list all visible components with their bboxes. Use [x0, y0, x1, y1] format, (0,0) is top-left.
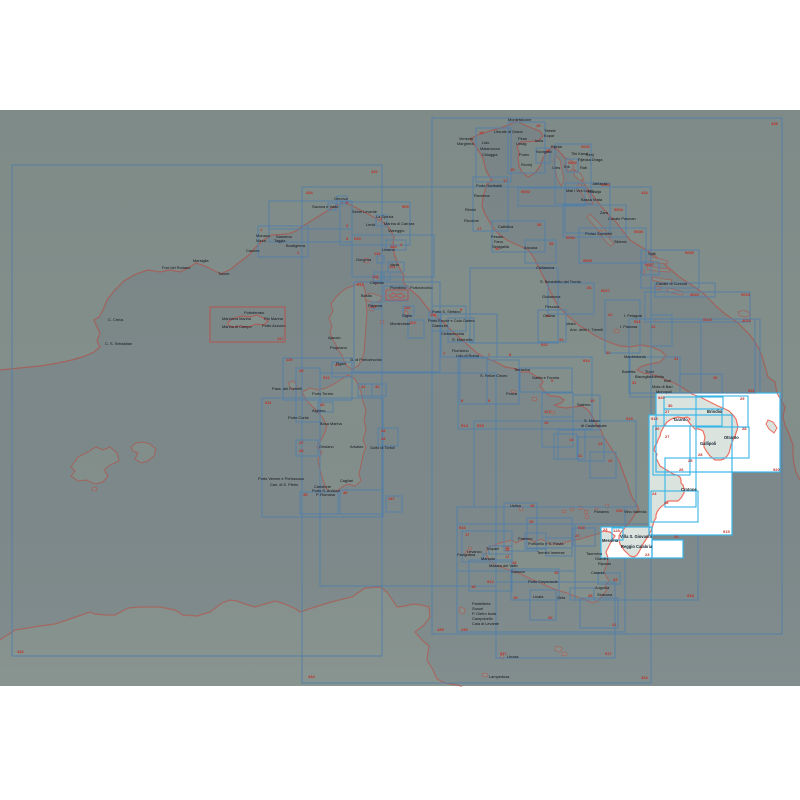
svg-text:S. Benedetto del Tronto: S. Benedetto del Tronto [540, 279, 581, 284]
svg-text:19: 19 [554, 570, 559, 575]
svg-text:Mazara del Vallo: Mazara del Vallo [489, 563, 518, 568]
svg-text:Augusta: Augusta [595, 585, 610, 590]
svg-text:34: 34 [587, 285, 592, 290]
svg-text:915: 915 [626, 416, 633, 421]
svg-text:Krk: Krk [564, 164, 570, 169]
svg-text:Brindisi: Brindisi [707, 409, 722, 414]
svg-text:Lido di Roma: Lido di Roma [456, 353, 480, 358]
svg-text:230: 230 [461, 627, 468, 632]
svg-text:22: 22 [575, 533, 580, 538]
svg-text:Porto Torres: Porto Torres [312, 391, 333, 396]
svg-text:Vibo Valentia: Vibo Valentia [624, 509, 647, 514]
svg-text:Marciana Marina: Marciana Marina [222, 316, 252, 321]
svg-text:33: 33 [613, 577, 618, 582]
svg-text:116: 116 [374, 251, 381, 256]
svg-text:Novigrad: Novigrad [536, 149, 552, 154]
svg-text:49: 49 [299, 368, 304, 373]
svg-text:Rio Marina: Rio Marina [264, 316, 284, 321]
svg-text:920: 920 [658, 395, 665, 400]
svg-text:13: 13 [598, 441, 603, 446]
svg-text:435: 435 [437, 627, 444, 632]
svg-text:Terracina: Terracina [514, 367, 531, 372]
svg-text:110: 110 [404, 305, 411, 310]
svg-text:Chioggia: Chioggia [482, 152, 498, 157]
svg-text:Marsiglia: Marsiglia [193, 258, 209, 263]
svg-text:31: 31 [674, 356, 679, 361]
svg-text:Catania: Catania [591, 570, 605, 575]
svg-text:26: 26 [655, 426, 660, 431]
svg-text:Savona e Vado: Savona e Vado [312, 204, 338, 209]
svg-text:Lampedusa: Lampedusa [489, 674, 510, 679]
svg-text:0004: 0004 [614, 207, 624, 212]
svg-text:Sibenic: Sibenic [614, 239, 627, 244]
svg-text:Genova: Genova [334, 196, 348, 201]
svg-text:913: 913 [357, 282, 364, 287]
svg-text:Tihi Kanal: Tihi Kanal [571, 151, 588, 156]
svg-text:0006: 0006 [685, 250, 695, 255]
svg-text:918: 918 [687, 593, 694, 598]
svg-text:919: 919 [651, 416, 658, 421]
svg-text:Gallipoli: Gallipoli [700, 441, 716, 446]
svg-text:Golfo di Tortoli: Golfo di Tortoli [370, 445, 395, 450]
svg-text:17: 17 [465, 532, 470, 537]
svg-text:28: 28 [742, 426, 747, 431]
svg-text:0002: 0002 [521, 189, 531, 194]
svg-text:Taranto: Taranto [673, 417, 688, 422]
svg-text:Zara: Zara [600, 210, 609, 215]
svg-text:16: 16 [530, 503, 535, 508]
svg-text:0010: 0010 [741, 292, 751, 297]
svg-text:Bastia: Bastia [361, 293, 373, 298]
svg-text:24: 24 [652, 491, 657, 496]
svg-text:Rimini: Rimini [465, 207, 476, 212]
svg-text:4022: 4022 [690, 292, 700, 297]
svg-text:17: 17 [505, 554, 510, 559]
svg-text:Vada: Vada [390, 262, 400, 267]
svg-text:15: 15 [529, 519, 534, 524]
svg-text:18: 18 [471, 584, 476, 589]
svg-text:Rab: Rab [580, 165, 587, 170]
svg-text:Riccione: Riccione [464, 218, 479, 223]
svg-text:25: 25 [664, 500, 669, 505]
svg-text:16: 16 [505, 547, 510, 552]
svg-text:Alghero: Alghero [312, 408, 325, 413]
svg-text:910: 910 [354, 236, 361, 241]
svg-text:28: 28 [698, 452, 703, 457]
svg-text:36: 36 [537, 222, 542, 227]
svg-text:Manfredonia: Manfredonia [624, 354, 646, 359]
svg-text:21: 21 [612, 622, 617, 627]
svg-text:Rovinj: Rovinj [521, 162, 532, 167]
svg-text:127: 127 [544, 409, 551, 414]
svg-text:Marina di Carrara: Marina di Carrara [384, 221, 415, 226]
svg-text:Montecristo: Montecristo [390, 321, 410, 326]
svg-text:Vasto: Vasto [566, 321, 576, 326]
svg-text:19: 19 [513, 595, 518, 600]
svg-text:Ortona: Ortona [543, 313, 556, 318]
svg-text:C. S. Sebastian: C. S. Sebastian [105, 341, 132, 346]
svg-text:Marina di Campo: Marina di Campo [222, 324, 252, 329]
svg-text:S. Felice Circeo: S. Felice Circeo [480, 373, 507, 378]
svg-text:Umag: Umag [516, 141, 526, 146]
svg-text:Prolaz Zapuntel: Prolaz Zapuntel [585, 231, 612, 236]
svg-text:Riposto: Riposto [598, 561, 611, 566]
svg-text:23: 23 [645, 552, 650, 557]
svg-text:Montefalcone: Montefalcone [508, 117, 531, 122]
svg-text:Licata: Licata [533, 594, 544, 599]
svg-text:43: 43 [381, 428, 386, 433]
svg-text:Ravenna: Ravenna [474, 193, 490, 198]
svg-text:20: 20 [548, 615, 553, 620]
svg-text:La Spezia: La Spezia [376, 214, 394, 219]
svg-text:Porto Vesme e Portoscuso: Porto Vesme e Portoscuso [258, 476, 304, 481]
svg-text:Lerici: Lerici [366, 222, 375, 227]
svg-text:Jablanac: Jablanac [592, 181, 608, 186]
svg-text:47: 47 [299, 440, 304, 445]
svg-text:24: 24 [674, 534, 679, 539]
svg-text:Porto Empedocle: Porto Empedocle [528, 579, 558, 584]
svg-text:Anc. delle I. Tremiti: Anc. delle I. Tremiti [570, 327, 603, 332]
svg-text:10: 10 [544, 420, 549, 425]
svg-text:Sciacca: Sciacca [511, 569, 525, 574]
svg-text:Porto S. Stefano: Porto S. Stefano [432, 309, 461, 314]
svg-text:27: 27 [665, 409, 670, 414]
svg-text:30: 30 [713, 375, 718, 380]
svg-text:Pianosa: Pianosa [368, 303, 383, 308]
svg-text:Pescara: Pescara [545, 304, 560, 309]
svg-text:Portovecchio: Portovecchio [410, 285, 433, 290]
svg-text:Messina: Messina [602, 538, 619, 543]
svg-text:Marghera: Marghera [457, 141, 474, 146]
svg-text:Rijeka: Rijeka [551, 144, 563, 149]
svg-text:33: 33 [559, 337, 564, 342]
svg-text:17: 17 [477, 226, 482, 231]
svg-text:912: 912 [323, 375, 330, 380]
svg-text:Porec: Porec [519, 152, 529, 157]
svg-text:920: 920 [773, 467, 780, 472]
svg-text:Viareggio: Viareggio [388, 228, 404, 233]
svg-text:Linosa: Linosa [507, 654, 519, 659]
svg-text:Porto Garibaldi: Porto Garibaldi [476, 183, 502, 188]
svg-text:Figari: Figari [336, 361, 346, 366]
svg-text:Salerno: Salerno [577, 402, 590, 407]
svg-text:922: 922 [541, 342, 548, 347]
svg-text:23: 23 [603, 527, 608, 532]
svg-text:41: 41 [361, 384, 366, 389]
svg-text:434: 434 [641, 190, 648, 195]
svg-text:Villa S. Giovanni: Villa S. Giovanni [620, 534, 652, 539]
svg-text:12: 12 [651, 324, 656, 329]
svg-text:Crotone: Crotone [681, 487, 697, 492]
svg-text:434: 434 [641, 675, 648, 680]
svg-text:438: 438 [771, 121, 778, 126]
svg-text:0007: 0007 [645, 262, 655, 267]
svg-text:0005: 0005 [634, 229, 644, 234]
svg-text:909: 909 [402, 204, 409, 209]
svg-text:Oristano: Oristano [319, 444, 334, 449]
svg-text:Piombino: Piombino [390, 285, 406, 290]
svg-text:4010: 4010 [742, 318, 752, 323]
svg-text:119: 119 [286, 357, 293, 362]
svg-text:Tolone: Tolone [218, 271, 229, 276]
svg-text:Giulianova: Giulianova [542, 294, 561, 299]
svg-text:Bisceglie: Bisceglie [635, 374, 651, 379]
svg-text:915: 915 [477, 423, 484, 428]
svg-text:0001: 0001 [581, 144, 591, 149]
svg-text:Capraia: Capraia [370, 280, 384, 285]
svg-text:914: 914 [583, 358, 590, 363]
svg-text:911: 911 [265, 400, 272, 405]
svg-text:Foci del Rodano: Foci del Rodano [162, 265, 190, 270]
svg-text:432: 432 [371, 169, 378, 174]
svg-text:Marsala: Marsala [481, 556, 496, 561]
svg-text:31: 31 [632, 380, 637, 385]
svg-text:19: 19 [536, 123, 541, 128]
svg-text:0017: 0017 [601, 288, 611, 293]
svg-text:di Castellabate: di Castellabate [581, 423, 607, 428]
svg-text:48: 48 [299, 448, 304, 453]
svg-text:Baska Vrata: Baska Vrata [581, 197, 603, 202]
svg-text:Panarea: Panarea [594, 509, 610, 514]
svg-text:Giglio: Giglio [402, 313, 412, 318]
svg-text:Bordighera: Bordighera [286, 243, 306, 248]
svg-text:Porticello e S. Flavia: Porticello e S. Flavia [528, 541, 564, 546]
svg-text:27: 27 [665, 434, 670, 439]
svg-text:I. Pianosa: I. Pianosa [620, 324, 638, 329]
svg-text:434: 434 [308, 674, 315, 679]
svg-text:Termini Imerese: Termini Imerese [537, 550, 565, 555]
svg-text:Ustica: Ustica [510, 503, 522, 508]
svg-text:117: 117 [277, 336, 284, 341]
svg-text:921: 921 [748, 388, 755, 393]
svg-text:29: 29 [740, 396, 745, 401]
svg-text:912: 912 [487, 579, 494, 584]
svg-text:Molfetta: Molfetta [650, 374, 665, 379]
svg-text:35: 35 [588, 593, 593, 598]
svg-text:S. Marinella: S. Marinella [452, 337, 473, 342]
svg-text:0010: 0010 [703, 317, 713, 322]
svg-text:Litorale di Grado: Litorale di Grado [494, 129, 523, 134]
svg-text:Lido: Lido [482, 140, 489, 145]
svg-text:Cala di Levante: Cala di Levante [472, 621, 499, 626]
svg-text:Arbatax: Arbatax [350, 444, 363, 449]
svg-text:Bosa Marina: Bosa Marina [320, 421, 343, 426]
svg-text:Can. di S. Pietro: Can. di S. Pietro [270, 482, 298, 487]
svg-text:230: 230 [616, 508, 623, 513]
svg-text:Canale Pasman: Canale Pasman [608, 216, 636, 221]
svg-text:26: 26 [679, 467, 684, 472]
svg-text:Gorgona: Gorgona [356, 257, 372, 262]
svg-text:Senigallia: Senigallia [492, 244, 510, 249]
svg-text:Livorno: Livorno [382, 247, 395, 252]
svg-text:917: 917 [605, 651, 612, 656]
svg-text:Cres: Cres [552, 165, 560, 170]
svg-text:19: 19 [510, 167, 515, 172]
svg-text:Gaeta e Formia: Gaeta e Formia [532, 375, 560, 380]
svg-text:Cattolica: Cattolica [498, 224, 514, 229]
svg-text:Nizza: Nizza [256, 238, 267, 243]
svg-text:Civitavecchia: Civitavecchia [441, 331, 465, 336]
svg-text:32: 32 [606, 350, 611, 355]
svg-text:Gela: Gela [557, 595, 566, 600]
svg-text:Civitanova: Civitanova [536, 265, 555, 270]
svg-text:10: 10 [590, 398, 595, 403]
svg-text:Bari: Bari [664, 378, 671, 383]
svg-text:42: 42 [375, 384, 380, 389]
svg-text:Porto Conte: Porto Conte [288, 415, 309, 420]
svg-text:P. Romana: P. Romana [316, 492, 336, 497]
svg-text:0005: 0005 [583, 258, 593, 263]
svg-text:Cagliari: Cagliari [340, 478, 353, 483]
svg-text:137: 137 [388, 496, 395, 501]
svg-text:916: 916 [459, 525, 466, 530]
svg-text:14: 14 [569, 437, 574, 442]
svg-text:Isola: Isola [535, 138, 544, 143]
svg-text:Ancona: Ancona [524, 245, 538, 250]
svg-text:128: 128 [613, 528, 620, 533]
svg-text:44: 44 [381, 436, 386, 441]
svg-text:116: 116 [372, 274, 379, 279]
svg-text:Malamocco: Malamocco [480, 146, 500, 151]
svg-text:Propriano: Propriano [330, 345, 347, 350]
svg-text:Monopoli: Monopoli [656, 389, 672, 394]
svg-text:I. Pelagosi: I. Pelagosi [624, 313, 642, 318]
svg-text:46: 46 [343, 490, 348, 495]
svg-text:Giannutri: Giannutri [432, 323, 448, 328]
svg-text:919: 919 [723, 529, 730, 534]
svg-text:Porto Azzurro: Porto Azzurro [262, 323, 286, 328]
svg-text:45: 45 [303, 492, 308, 497]
svg-text:Rijecka Draga: Rijecka Draga [578, 157, 603, 162]
svg-text:Kopar: Kopar [544, 133, 555, 138]
svg-text:Trapani: Trapani [486, 546, 499, 551]
svg-text:434: 434 [306, 190, 313, 195]
svg-text:Ajaccio: Ajaccio [328, 335, 341, 340]
svg-text:Ponza: Ponza [506, 391, 518, 396]
svg-text:918: 918 [578, 525, 585, 530]
svg-text:40: 40 [320, 402, 325, 407]
svg-text:432: 432 [17, 649, 24, 654]
svg-text:G. di Portovecchio: G. di Portovecchio [350, 357, 382, 362]
svg-text:Cannes: Cannes [246, 248, 259, 253]
svg-text:25: 25 [688, 458, 693, 463]
svg-text:Canale di Curzola: Canale di Curzola [656, 281, 688, 286]
svg-text:35: 35 [549, 241, 554, 246]
svg-text:122: 122 [409, 320, 416, 325]
svg-text:30: 30 [668, 403, 673, 408]
svg-text:Reggio Calabria: Reggio Calabria [621, 544, 653, 549]
svg-text:Otranto: Otranto [724, 435, 739, 440]
svg-text:18: 18 [479, 130, 484, 135]
svg-text:Sestri Levante: Sestri Levante [352, 209, 377, 214]
svg-text:Pass. dei Fornelli: Pass. dei Fornelli [272, 386, 302, 391]
svg-text:22: 22 [608, 312, 613, 317]
svg-text:C. Creus: C. Creus [108, 317, 123, 322]
svg-text:12: 12 [608, 458, 613, 463]
svg-text:Portoferraio: Portoferraio [244, 310, 264, 315]
svg-text:Siracusa: Siracusa [597, 592, 613, 597]
svg-text:Taggia: Taggia [274, 238, 286, 243]
svg-text:Split: Split [648, 251, 656, 256]
svg-text:Favignana: Favignana [457, 552, 476, 557]
svg-text:0004: 0004 [566, 235, 576, 240]
svg-text:914: 914 [461, 423, 468, 428]
svg-text:17: 17 [503, 178, 508, 183]
svg-text:Mali i Veli Losinj: Mali i Veli Losinj [566, 188, 594, 193]
